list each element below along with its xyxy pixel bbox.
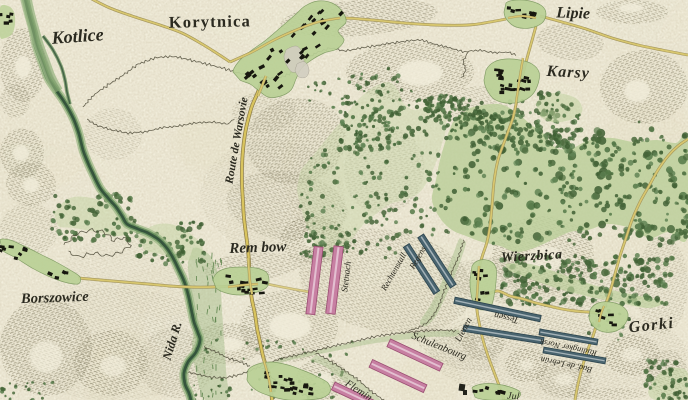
svg-text:Borszowice: Borszowice [20, 289, 90, 307]
svg-text:Jul: Jul [507, 390, 520, 400]
svg-text:Kotlice: Kotlice [50, 24, 104, 48]
svg-text:Lipie: Lipie [555, 4, 590, 22]
svg-text:Karsy: Karsy [545, 63, 590, 82]
svg-text:Korytnica: Korytnica [169, 11, 252, 31]
svg-text:Rem bow: Rem bow [228, 239, 288, 257]
